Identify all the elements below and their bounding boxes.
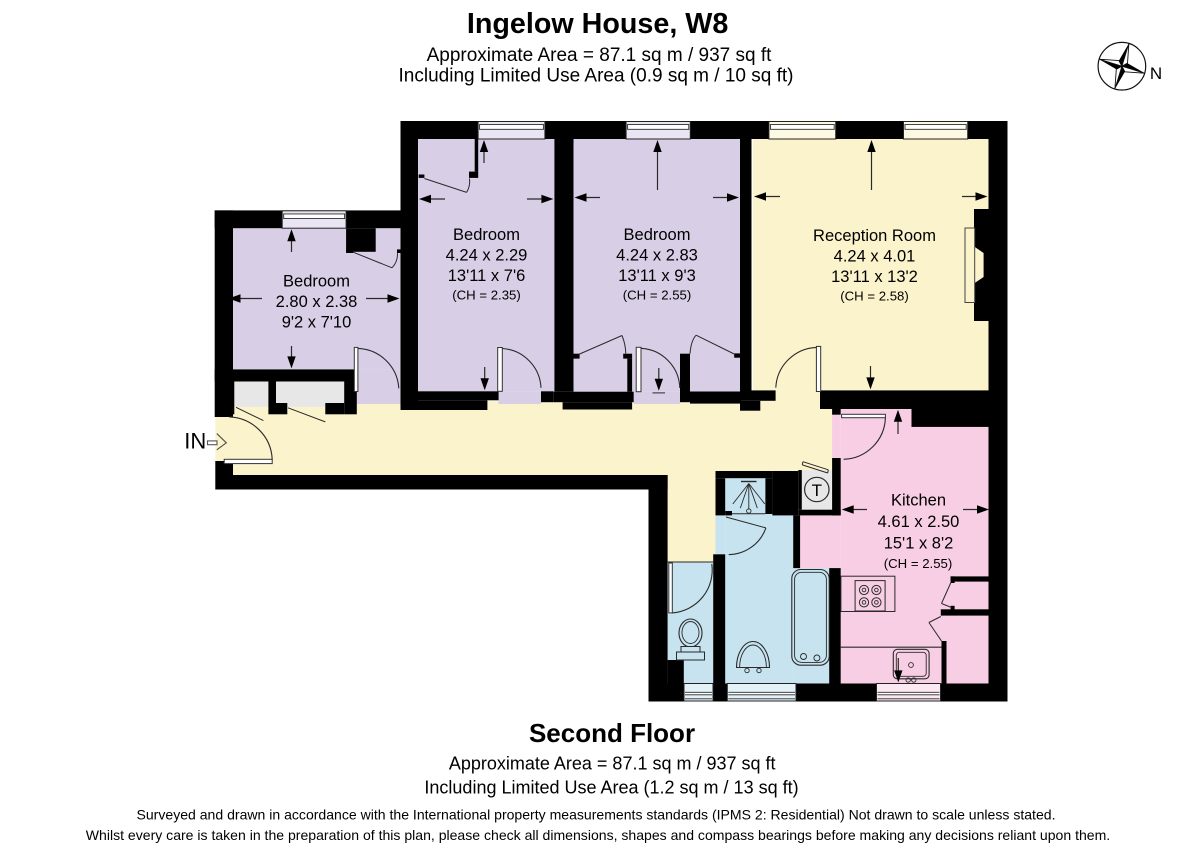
svg-text:Kitchen: Kitchen — [891, 492, 946, 510]
svg-text:Surveyed and drawn in accordan: Surveyed and drawn in accordance with th… — [137, 807, 1056, 823]
svg-text:Whilst every care is taken in: Whilst every care is taken in the prepar… — [86, 827, 1110, 843]
svg-text:(CH = 2.55): (CH = 2.55) — [623, 288, 692, 303]
svg-text:N: N — [1150, 64, 1162, 83]
svg-text:4.24 x 2.29: 4.24 x 2.29 — [446, 246, 528, 264]
svg-text:Approximate Area = 87.1 sq m /: Approximate Area = 87.1 sq m / 937 sq ft — [427, 45, 773, 66]
svg-text:15'1 x 8'2: 15'1 x 8'2 — [884, 535, 954, 553]
svg-text:13'11 x 13'2: 13'11 x 13'2 — [831, 268, 918, 286]
svg-text:13'11 x 7'6: 13'11 x 7'6 — [448, 267, 526, 285]
svg-text:Bedroom: Bedroom — [453, 226, 520, 244]
svg-text:Reception Room: Reception Room — [813, 227, 936, 245]
svg-text:Including Limited Use Area (0.: Including Limited Use Area (0.9 sq m / 1… — [399, 66, 794, 87]
svg-text:IN: IN — [184, 429, 206, 454]
svg-text:2.80 x 2.38: 2.80 x 2.38 — [276, 293, 358, 311]
svg-text:Ingelow House, W8: Ingelow House, W8 — [467, 8, 728, 40]
svg-text:(CH = 2.55): (CH = 2.55) — [884, 556, 953, 571]
svg-text:4.24 x 2.83: 4.24 x 2.83 — [616, 246, 698, 264]
svg-text:(CH = 2.58): (CH = 2.58) — [840, 289, 909, 304]
svg-text:Second Floor: Second Floor — [529, 718, 695, 748]
svg-text:Bedroom: Bedroom — [624, 226, 691, 244]
svg-text:Bedroom: Bedroom — [283, 273, 350, 291]
svg-text:Approximate Area = 87.1 sq m /: Approximate Area = 87.1 sq m / 937 sq ft — [449, 753, 776, 773]
svg-text:Including Limited Use Area (1.: Including Limited Use Area (1.2 sq m / 1… — [424, 777, 798, 797]
svg-text:4.61 x 2.50: 4.61 x 2.50 — [878, 513, 960, 531]
svg-text:9'2 x 7'10: 9'2 x 7'10 — [282, 313, 352, 331]
svg-text:(CH = 2.35): (CH = 2.35) — [452, 288, 521, 303]
svg-text:13'11 x 9'3: 13'11 x 9'3 — [618, 267, 696, 285]
svg-text:4.24 x 4.01: 4.24 x 4.01 — [834, 247, 916, 265]
svg-text:T: T — [812, 481, 822, 500]
